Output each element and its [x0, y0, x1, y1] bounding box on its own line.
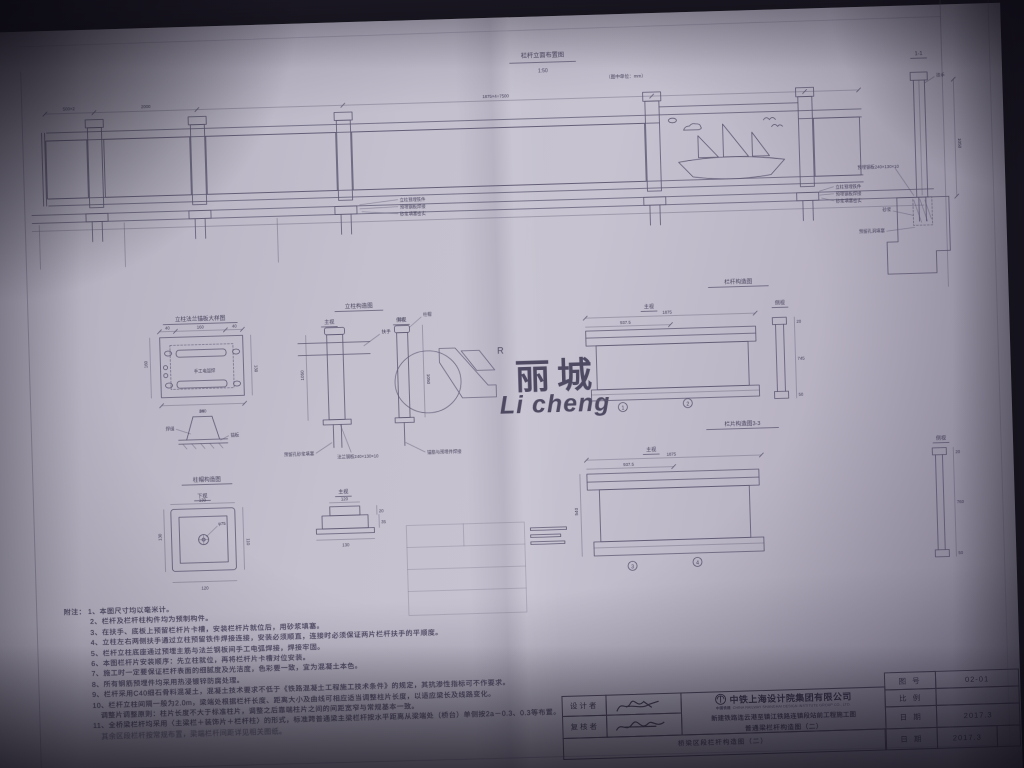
cap-hole-dim: φ75: [218, 521, 226, 526]
mortar-label: 砂浆: [882, 206, 892, 213]
cloud-large: [683, 123, 701, 130]
cap-f-bottom: 130: [342, 542, 350, 547]
elevation-title: 栏杆立面布置图: [521, 51, 565, 60]
panel1-mark1: 1: [621, 405, 624, 411]
railing-elevation-view: 栏杆立面布置图 1:50 （图中单位：mm） 500×2 2000 1875×4…: [28, 40, 936, 270]
cap-front-label: 主视: [338, 488, 348, 495]
elevation-dimensions: 500×2 2000 1875×4=7500: [43, 83, 861, 116]
panel2-sd3: 50: [958, 550, 964, 555]
notes-heading: 附注：: [64, 609, 86, 617]
weld-plate-label: 锚板: [230, 431, 240, 438]
post-flange-label: 法兰钢板240×130×10: [337, 452, 379, 460]
cap-dim-top: 130: [199, 497, 207, 502]
post-dim-top: 112: [398, 317, 406, 322]
panel2-dim-height: 540: [574, 507, 579, 515]
dim-a: 500×2: [63, 106, 76, 111]
boat-hull: [679, 155, 786, 180]
hole-label: 预留孔洞填塞: [859, 227, 886, 235]
rail-label: 扶手: [936, 71, 946, 78]
panel1-title: 栏杆构造图: [724, 277, 753, 286]
section-dim: 1050: [957, 138, 962, 149]
anchor-plate-detail: 立柱法兰锚板大样图 手工电弧焊 40 160 40: [142, 313, 260, 415]
date-label: 日 期: [885, 705, 938, 730]
panel1-sd1: 20: [796, 319, 802, 324]
signature-stroke: [611, 715, 678, 735]
post-dim-height: 1050: [300, 370, 305, 381]
panel1-front-label: 主视: [644, 303, 654, 310]
panel2-mark2: 4: [696, 560, 699, 566]
panel2-title: 栏片构造图3-3: [724, 419, 760, 428]
cap-f-r2: 35: [381, 519, 387, 524]
elevation-scale: 1:50: [538, 68, 548, 74]
post-section-detail: 1-1 扶手 1050: [854, 50, 966, 275]
empty-cell: [996, 724, 1021, 747]
dim-b: 2000: [141, 104, 151, 109]
panel2-front-label: 主视: [646, 446, 656, 453]
dim-c: 1875×4=7500: [482, 93, 509, 99]
cap-title: 柱帽构造图: [193, 475, 222, 484]
plate-dim-r: 130: [253, 365, 258, 373]
panel1-dim-total: 1875: [662, 310, 672, 315]
weld-dim: 80: [199, 408, 205, 413]
sailboat-decor-panel: [668, 115, 785, 181]
weld-detail: 80 焊缝 锚板: [165, 407, 240, 449]
logo-gray-l-shape: [439, 347, 496, 399]
post-front-label: 主视: [324, 319, 334, 326]
company-brand-small: 中国铁建: [716, 706, 731, 711]
date2-value: 2017.3: [937, 725, 999, 749]
railing-panel-detail-1: 栏杆构造图 主视 1875 937.5 1: [582, 276, 807, 413]
company-emblem-icon: [714, 693, 726, 705]
panel1-side-label: 侧视: [775, 299, 785, 306]
panel2-side-label: 侧视: [936, 435, 946, 442]
signature-stroke: [610, 694, 677, 714]
plate-dim-l: 160: [143, 360, 148, 368]
title-block: 设计者 复核者: [561, 667, 1021, 761]
panel1-sd3: 50: [799, 392, 805, 397]
designer-label: 设计者: [561, 695, 607, 717]
post-cap-detail: 柱帽构造图 下视 φ75 130 120 130: [156, 470, 389, 592]
plate-dim-tm: 160: [197, 324, 205, 329]
panel2-dim-total: 1875: [666, 452, 676, 457]
sheet-content: 栏杆立面布置图 1:50 （图中单位：mm） 500×2 2000 1875×4…: [0, 0, 1024, 768]
cap-dim-right: 110: [246, 538, 251, 546]
post-cap-label: 柱帽: [423, 311, 432, 318]
post-mortar-label: 预留孔砂浆填塞: [284, 450, 315, 458]
post-anchor-label: 锚筋与预埋件焊接: [427, 448, 462, 456]
weld-text: 手工电弧焊: [194, 367, 216, 375]
sail-1: [698, 135, 719, 158]
logo-english-name: Li cheng: [499, 388, 611, 419]
panel2-sd2: 760: [957, 499, 965, 504]
leader-6: 砂浆填塞密实: [836, 197, 863, 205]
leader-3: 砂浆填塞密实: [400, 210, 427, 218]
post-title: 立柱构造图: [345, 301, 374, 310]
cap-f-r1: 20: [379, 508, 385, 513]
post-base-leaders-1: 立柱预埋铁件 预埋钢板焊接 砂浆填塞密实: [360, 196, 427, 219]
anchor-plate-title: 立柱法兰锚板大样图: [175, 314, 226, 324]
leader-1: 立柱预埋铁件: [400, 196, 427, 204]
panel2-mark1: 3: [631, 564, 634, 570]
panel1-sd2: 745: [797, 356, 805, 361]
sail-3: [752, 132, 770, 156]
panel1-dim-half: 937.5: [620, 320, 632, 325]
panel1-mark2: 2: [686, 401, 689, 407]
cap-dim-left: 130: [157, 533, 162, 541]
checker-label: 复核者: [562, 715, 608, 739]
post-construction-detail: 立柱构造图 主视 侧视 扶手 1050: [280, 299, 463, 462]
sail-2: [723, 123, 749, 157]
deck-and-anchors: [32, 189, 935, 270]
date2-label: 日 期: [886, 727, 939, 751]
panel2-dim-half: 937.5: [623, 462, 635, 467]
plate-dim-tl: 40: [165, 325, 171, 330]
elevation-unit-note: （图中单位：mm）: [606, 72, 646, 80]
photo-of-engineering-drawing: 栏杆立面布置图 1:50 （图中单位：mm） 500×2 2000 1875×4…: [0, 0, 1024, 768]
paper-sheet: 栏杆立面布置图 1:50 （图中单位：mm） 500×2 2000 1875×4…: [0, 3, 1023, 768]
post-dim-height-2: 1050: [426, 374, 431, 385]
cloud-small: [668, 118, 676, 123]
leader-5: 预埋钢板焊接: [836, 190, 863, 198]
weld-label: 焊缝: [166, 425, 176, 432]
cap-dim-bottom: 120: [201, 585, 209, 590]
note-text-1: 1、本图尺寸均以毫米计。: [88, 607, 174, 617]
post-base-leaders-2: 立柱预埋铁件 预埋钢板焊接 砂浆填塞密实: [819, 183, 862, 205]
panel2-sd1: 20: [955, 449, 961, 454]
post-rail-label: 扶手: [381, 328, 391, 335]
cap-f-top: 120: [341, 496, 349, 501]
logo-registered-mark: R: [497, 346, 504, 356]
plate-label: 预埋钢板240×130×10: [857, 163, 899, 171]
plate-dim-tr: 40: [232, 323, 238, 328]
company-block: 中铁上海设计院集团有限公司 中国铁建 CHINA RAILWAY SHANGHA…: [680, 686, 886, 735]
leader-4: 立柱预埋铁件: [835, 183, 862, 191]
section-title: 1-1: [914, 51, 922, 57]
birds: [763, 117, 782, 127]
leader-2: 预埋钢板焊接: [400, 203, 427, 211]
railing-panel-detail-2: 栏片构造图3-3 主视 1875 937.5 540: [571, 413, 966, 572]
